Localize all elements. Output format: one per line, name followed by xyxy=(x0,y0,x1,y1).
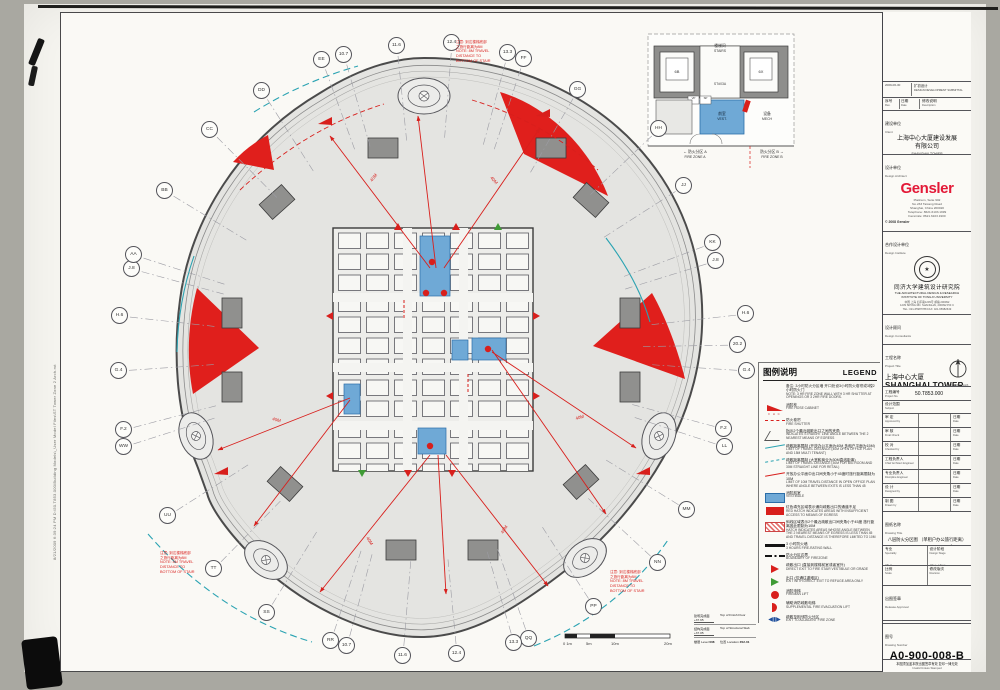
fireman-legend-symbol xyxy=(763,589,786,599)
title-block: 2009-06-30 扩初设计 DESIGN DEVELOPMENT SUBMI… xyxy=(882,12,971,672)
project-title-section: 工程名称Project Title 上海中心大厦 SHANGHAI TOWER … xyxy=(883,344,971,386)
legend-text-en: VESTIBULE xyxy=(786,495,877,499)
legend-text-en: 3 HOURS FIRE-RATING WALL xyxy=(786,547,877,551)
legend-text-en: EXIT WITH DIRECT EXIT TO REFUGE AREA ONL… xyxy=(786,580,877,584)
fhc-legend-symbol: F H C xyxy=(763,403,786,416)
legend-text-en: BOUNDARY OF FIREZONE xyxy=(786,557,877,561)
inset-stair-id: ST#03A xyxy=(702,82,738,86)
legend-panel: 图例说明 LEGEND 备注: 3小时防火分区墙 开口处设3小时防火卷帘或3樘2… xyxy=(758,362,880,623)
legend-item: 疏散距离限制 (开放办公平面为40M 多租户平面为15M)LIMIT OF TR… xyxy=(763,444,877,456)
shutter-legend-symbol xyxy=(763,418,786,421)
speciality-stage-row: 专业Speciality 建筑 ARCHITECTURE 设计阶段Design … xyxy=(883,545,971,565)
scale-revision-row: 比例Scale A3 1:400 A1 1:200 修改版次Revision xyxy=(883,565,971,585)
approval-role-label: 制 图Drawn by xyxy=(883,498,919,511)
legend-item: 开放办公平面中出口间夹角小于45度时旅行距离限制为10MLIMIT OF 10M… xyxy=(763,472,877,488)
inset-lift-left-label: 6B xyxy=(668,70,686,75)
legend-text-en: SUPPLEMENTAL FIRE EVACUATION LIFT xyxy=(786,606,877,610)
teal-legend-symbol xyxy=(763,444,786,447)
legend-item: 防火卷帘FIRE SHUTTER xyxy=(763,418,877,426)
project-number-row: 工程编号Project No. 50.T853.000 xyxy=(883,386,971,401)
drawing-title-section: 图纸名称Drawing Title 八层防火分区图 （单租户办公旅行距离） FI… xyxy=(883,511,971,545)
approval-row: 设 计Designed by日期Date xyxy=(883,483,971,497)
legend-text-en: DIRECT EXIT TO FIRE STAIR VESTIBULE OR G… xyxy=(786,568,877,572)
subject-row: 设计范围Subject xyxy=(883,400,971,413)
legend-item: 指示2个最近疏散出口之间的夹角INDICATES STRAIGHT LINE A… xyxy=(763,429,877,441)
svg-text:5m: 5m xyxy=(586,641,592,646)
svg-text:0 1m: 0 1m xyxy=(563,641,573,646)
legend-text-en: HATCH INDICATES AREAS WHOSE ANGLE BETWEE… xyxy=(786,529,877,540)
inset-vp-label: VP xyxy=(688,97,699,100)
legend-item: 防火分区边界BOUNDARY OF FIREZONE xyxy=(763,553,877,561)
level-info-block: 建筑完成面+37.65 Top of Finish Floor 结构完成面+37… xyxy=(694,612,756,645)
validity-note: 本图须加盖本院出图签章有效 复印一律无效 Invalid Unless Stam… xyxy=(883,659,971,672)
central-core xyxy=(326,223,540,477)
approval-row: 审 核Final Check日期Date xyxy=(883,427,971,441)
approval-date-cell: 日期Date xyxy=(951,470,971,483)
svg-text:20m: 20m xyxy=(664,641,672,646)
legend-text-en: FIRE HOSE CABINET xyxy=(786,407,877,411)
approval-date-cell: 日期Date xyxy=(951,484,971,497)
approval-signature-cell xyxy=(919,470,951,483)
redfill-legend-symbol xyxy=(763,505,786,515)
design-architect-section: 设计单位Design Architect Gensler Platinum, S… xyxy=(883,154,971,231)
svg-text:10m: 10m xyxy=(611,641,619,646)
drawing-number-value: A0-900-008-B xyxy=(885,650,969,659)
legend-text-en: NOTE: 3 HR FIRE ZONE WALL WITH 3 HR SHUT… xyxy=(786,393,877,400)
inset-mech-label: 设备 MECH xyxy=(752,112,782,121)
stair-travel-note: 注意: 到达楼梯底部 之旅行距离为8M NOTE: 8M TRAVEL DIST… xyxy=(610,570,662,594)
approval-date-cell: 日期Date xyxy=(951,498,971,511)
approval-date-cell: 日期Date xyxy=(951,428,971,441)
legend-items: 备注: 3小时防火分区墙 开口处设3小时防火卷帘或3樘2小时防火门NOTE: 3… xyxy=(763,384,877,623)
legend-text-en: EXIT TO ADJACENT FIRE ZONE xyxy=(786,619,877,623)
legend-item: 消防前室VESTIBULE xyxy=(763,491,877,503)
design-consultants-section: 设计顾问Design Consultants xyxy=(883,314,971,344)
approval-row: 校 对Checked by日期Date xyxy=(883,441,971,455)
release-approval-section: 出图签章Release Approval xyxy=(883,585,971,621)
stair-travel-note: 注意: 到达楼梯底部 之旅行距离为8M NOTE: 8M TRAVEL DIST… xyxy=(160,551,212,575)
redhatch-legend-symbol xyxy=(763,520,786,532)
structural-slab-row: 结构完成面+37.05 Top of Structural Slab xyxy=(694,625,756,638)
gensler-copyright: © 2008 Gensler xyxy=(885,220,969,224)
exitgreen-legend-symbol xyxy=(763,576,786,586)
approval-role-label: 设 计Designed by xyxy=(883,484,919,497)
legend-item: 出口 (仅通往避难区)EXIT WITH DIRECT EXIT TO REFU… xyxy=(763,576,877,586)
north-arrow: North & Ref. North xyxy=(947,357,969,386)
vest-legend-symbol xyxy=(763,491,786,503)
drawing-number-section: 图号Drawing Number A0-900-008-B xyxy=(883,623,971,659)
legend-text-en: RED HATCH INDICATES AREAS WITH INSUFFICI… xyxy=(786,510,877,517)
approval-rows: 审 定Approved by日期Date审 核Final Check日期Date… xyxy=(883,413,971,511)
approval-signature-cell xyxy=(919,456,951,469)
approval-role-label: 审 定Approved by xyxy=(883,414,919,427)
approval-role-label: 工程负责人Chief Architect Engineer xyxy=(883,456,919,469)
finish-floor-row: 建筑完成面+37.65 Top of Finish Floor xyxy=(694,612,756,625)
approval-role-label: 专业负责人Discipline Engineer xyxy=(883,470,919,483)
legend-title-zh: 图例说明 xyxy=(763,366,797,378)
supp-legend-symbol xyxy=(763,601,786,612)
scale-bar: 0 1m 5m 10m 20m xyxy=(563,634,672,646)
approval-row: 制 图Drawn by日期Date xyxy=(883,497,971,511)
tongji-seal: ★ xyxy=(914,256,940,282)
approval-role-label: 校 对Checked by xyxy=(883,442,919,455)
approval-signature-cell xyxy=(919,428,951,441)
legend-item: 疏散距离限制 (大堂和商业为30M直线距离)LIMIT OF TRAVEL DI… xyxy=(763,458,877,470)
legend-text-en: LIMIT OF TRAVEL DISTANCE (30M FOR BIG RO… xyxy=(786,462,877,469)
submittal-row: 2009-06-30 扩初设计 DESIGN DEVELOPMENT SUBMI… xyxy=(883,81,971,97)
inset-fire-zone-b: 防火分区 B → FIRE ZONE B xyxy=(742,150,802,159)
legend-item: 红色填充区域表示通向疏散出口的通道不足RED HATCH INDICATES A… xyxy=(763,505,877,517)
approval-signature-cell xyxy=(919,414,951,427)
stair-travel-note: 注意: 到达楼梯底部 之旅行距离为8M NOTE: 8M TRAVEL DIST… xyxy=(456,40,508,64)
submittal-date: 2009-06-30 xyxy=(885,83,912,96)
inset-sp-label: SP xyxy=(700,97,711,100)
approval-signature-cell xyxy=(919,442,951,455)
approval-row: 工程负责人Chief Architect Engineer日期Date xyxy=(883,455,971,469)
legend-text-en: FIREMAN LIFT xyxy=(786,593,877,597)
approval-row: 审 定Approved by日期Date xyxy=(883,413,971,427)
submittal-en: DESIGN DEVELOPMENT SUBMITTAL xyxy=(914,88,969,92)
legend-text-en: FIRE SHUTTER xyxy=(786,423,877,427)
project-number-value: 50.T853.000 xyxy=(915,391,943,397)
legend-text-en: LIMIT OF TRAVEL DISTANCE (40M OPEN OFFIC… xyxy=(786,448,877,455)
stair-inset-detail xyxy=(648,34,794,168)
legend-header: 图例说明 LEGEND xyxy=(763,366,877,381)
legend-item: 疏散出口 (直接到楼梯前室或者室外)DIRECT EXIT TO FIRE ST… xyxy=(763,563,877,573)
legend-item: 3 小时防火墙3 HOURS FIRE-RATING WALL xyxy=(763,542,877,550)
legend-text-en: LIMIT OF 10M TRAVEL DISTANCE IN OPEN OFF… xyxy=(786,481,877,488)
wall-legend-symbol xyxy=(763,542,786,547)
legend-text-en: INDICATES STRAIGHT LINE ANGLE BETWEEN TH… xyxy=(786,433,877,440)
client-section: 建设单位Client 上海中心大厦建设发展 有限公司 SHANGHAI TOWE… xyxy=(883,110,971,154)
approval-row: 专业负责人Discipline Engineer日期Date xyxy=(883,469,971,483)
approval-date-cell: 日期Date xyxy=(951,456,971,469)
legend-item: F H C消防栓FIRE HOSE CABINET xyxy=(763,403,877,416)
legend-item: 备注: 3小时防火分区墙 开口处设3小时防火卷帘或3樘2小时防火门NOTE: 3… xyxy=(763,384,877,400)
level-location-row: 楼层 Level 008 位置 Location Z02-01 xyxy=(694,638,756,645)
legend-item: 辅助消防疏散电梯SUPPLEMENTAL FIRE EVACUATION LIF… xyxy=(763,601,877,612)
revision-header-row: 序号Rev. 日期Date 修改说明Description xyxy=(883,97,971,110)
title-block-spacer xyxy=(883,12,971,81)
legend-item: ◀▮▶疏散至相邻防火分区EXIT TO ADJACENT FIRE ZONE xyxy=(763,615,877,623)
approval-signature-cell xyxy=(919,484,951,497)
legend-item: 消防电梯FIREMAN LIFT xyxy=(763,589,877,599)
approval-date-cell: 日期Date xyxy=(951,442,971,455)
teal2-legend-symbol xyxy=(763,458,786,461)
legend-symbol-sublabel: F H C xyxy=(768,412,780,416)
boundary-legend-symbol xyxy=(763,553,786,557)
approval-role-label: 审 核Final Check xyxy=(883,428,919,441)
approval-date-cell: 日期Date xyxy=(951,414,971,427)
inset-vestibule-label: 前室 VEST. xyxy=(704,112,740,121)
approval-signature-cell xyxy=(919,498,951,511)
inset-fire-zone-a: ← 防火分区 A FIRE ZONE A xyxy=(662,150,728,159)
design-institute-section: 合作设计单位Design Institute ★ 同济大学建筑设计研究院 THE… xyxy=(883,231,971,314)
adjacent-legend-symbol: ◀▮▶ xyxy=(763,615,786,623)
redline-legend-symbol xyxy=(763,472,786,475)
legend-title-en: LEGEND xyxy=(843,368,877,377)
inset-lift-right-label: 6X xyxy=(752,70,770,75)
exitred-legend-symbol xyxy=(763,563,786,573)
inset-stairs-label: 楼梯间 STAIRS xyxy=(702,44,738,53)
scanned-drawing-sheet: 8/21/2009 6:39:24 PM D:\50.T853.000\Buil… xyxy=(0,0,1000,688)
legend-item: 斜线区域表示2个最近疏散出口间夹角小于45度 旅行距离因此限制为10MHATCH… xyxy=(763,520,877,540)
gensler-logo: Gensler xyxy=(885,180,969,197)
angle-legend-symbol xyxy=(763,429,786,441)
none-legend-symbol xyxy=(763,384,786,386)
